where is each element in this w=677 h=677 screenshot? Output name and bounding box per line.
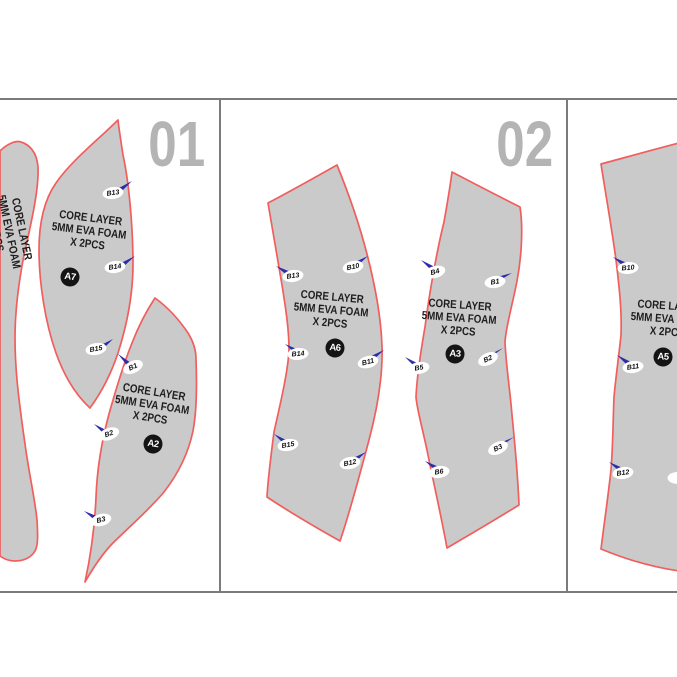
grid-line-bottom (0, 591, 677, 593)
grid-line-divider-1 (219, 98, 221, 593)
piece-shape-A3 (416, 172, 522, 548)
section-number-01: 01 (148, 112, 205, 176)
piece-label-A5: CORE LAYER 5MM EVA FOAM X 2PCS (629, 298, 677, 342)
piece-shape-A6 (267, 165, 382, 541)
grid-line-top (0, 98, 677, 100)
piece-label-A6: CORE LAYER 5MM EVA FOAM X 2PCS (292, 288, 370, 333)
piece-label-A3: CORE LAYER 5MM EVA FOAM X 2PCS (420, 297, 497, 341)
section-number-02: 02 (496, 112, 553, 176)
pattern-sheet-page: 01 02 CORE LAYER 5MM EVA FOAM X 2PCS COR… (0, 0, 677, 677)
grid-line-divider-2 (566, 98, 568, 593)
